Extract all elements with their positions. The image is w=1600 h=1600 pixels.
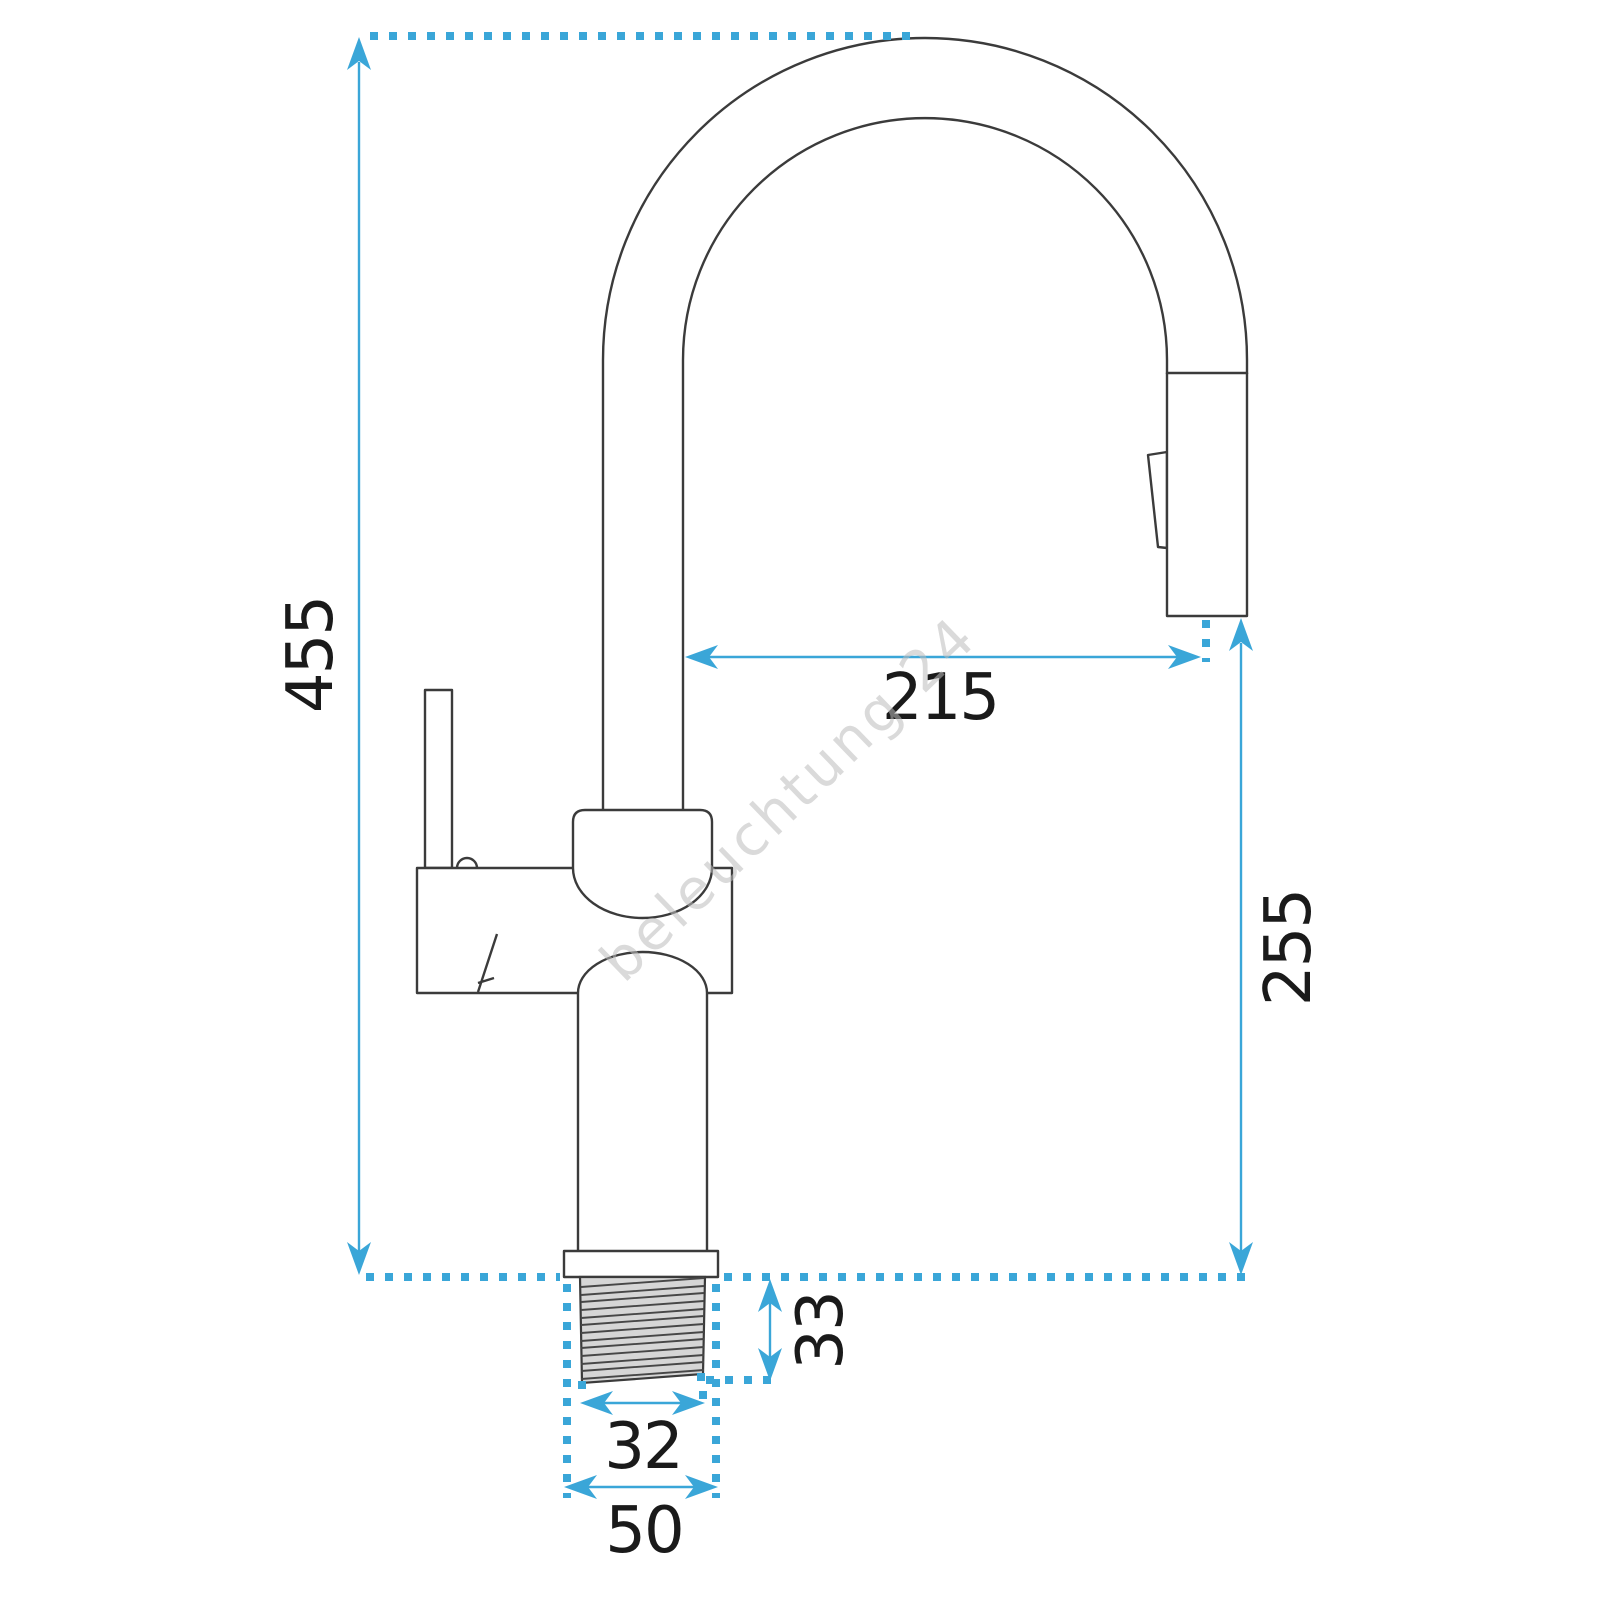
spray-clip [1148,452,1167,548]
thread-corner-dot-right [697,1373,705,1381]
dimension-thread-length: 33 [758,1279,858,1381]
base-diameter-label: 50 [605,1494,682,1568]
thread-corner-dot-left [578,1381,586,1389]
dimension-thread-diameter: 32 [580,1391,705,1484]
mounting-flange [564,1251,718,1277]
dimension-total-height: 455 [274,37,371,1275]
total-height-label: 455 [274,597,348,713]
watermark-text: beleuchtung 24 [588,604,989,995]
body-bump [457,858,477,868]
diagram-canvas: 455 215 255 33 32 [0,0,1600,1600]
thread-diameter-label: 32 [604,1410,681,1484]
dimension-base-diameter: 50 [564,1475,718,1568]
dimension-outlet-height: 255 [1229,618,1326,1275]
thread-length-label: 33 [784,1292,858,1369]
thread-corner-dot-right-2 [699,1391,707,1399]
handle-lever [425,690,452,868]
faucet-dimension-drawing: 455 215 255 33 32 [0,0,1600,1600]
faucet-outline [417,38,1247,1383]
spout-head [1167,373,1247,616]
outlet-height-label: 255 [1252,890,1326,1006]
base-column [578,952,707,1251]
